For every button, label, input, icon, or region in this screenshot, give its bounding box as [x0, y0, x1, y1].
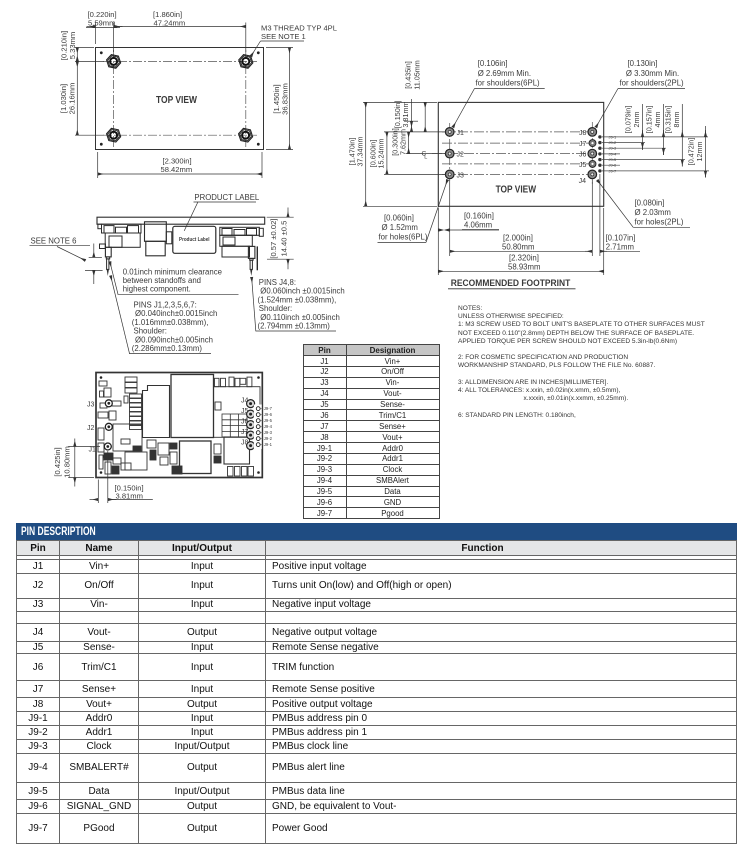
svg-text:50.80mm: 50.80mm — [502, 242, 535, 251]
svg-text:4mm: 4mm — [653, 112, 662, 128]
svg-text:SEE NOTE 6: SEE NOTE 6 — [31, 237, 77, 246]
svg-text:J7: J7 — [241, 429, 249, 436]
svg-text:[0.130in]: [0.130in] — [628, 59, 658, 68]
svg-text:J2: J2 — [457, 152, 465, 159]
svg-text:Product Label: Product Label — [179, 237, 210, 243]
svg-text:TOP VIEW: TOP VIEW — [496, 185, 537, 196]
svg-text:[0.160in]: [0.160in] — [464, 211, 494, 220]
svg-text:TOP VIEW: TOP VIEW — [156, 95, 197, 106]
svg-text:J4: J4 — [241, 398, 249, 405]
svg-text:3.81mm: 3.81mm — [116, 491, 143, 500]
svg-text:3.81mm: 3.81mm — [401, 102, 410, 128]
svg-text:for shoulders(6PL): for shoulders(6PL) — [476, 79, 541, 88]
svg-text:(2.286mm±0.13mm): (2.286mm±0.13mm) — [132, 344, 203, 353]
svg-text:14.40 ±0.5: 14.40 ±0.5 — [280, 221, 289, 257]
svg-text:[0.425in]: [0.425in] — [53, 447, 62, 476]
svg-text:47.24mm: 47.24mm — [154, 19, 186, 28]
svg-text:J5: J5 — [241, 408, 249, 415]
svg-text:[0.106in]: [0.106in] — [478, 59, 508, 68]
svg-text:J9-5: J9-5 — [264, 418, 273, 423]
svg-text:Ø0.040inch±0.0015inch: Ø0.040inch±0.0015inch — [135, 309, 217, 318]
svg-text:2.71mm: 2.71mm — [606, 242, 634, 251]
svg-text:[0.435in]: [0.435in] — [404, 61, 413, 89]
svg-text:(2.794mm ±0.13mm): (2.794mm ±0.13mm) — [258, 322, 331, 331]
svg-text:J1: J1 — [89, 447, 97, 454]
svg-text:J2: J2 — [87, 425, 95, 432]
svg-text:J3: J3 — [457, 173, 465, 180]
svg-text:Ø0.060inch ±0.0015inch: Ø0.060inch ±0.0015inch — [260, 287, 344, 296]
svg-text:J6: J6 — [241, 419, 249, 426]
svg-text:[0.107in]: [0.107in] — [606, 234, 636, 243]
svg-text:Shoulder:: Shoulder: — [259, 304, 292, 313]
svg-text:[2.000in]: [2.000in] — [503, 234, 533, 243]
svg-text:PINS J4,8:: PINS J4,8: — [259, 278, 296, 287]
svg-text:J9-4: J9-4 — [264, 424, 273, 429]
svg-text:58.42mm: 58.42mm — [161, 165, 193, 174]
svg-text:J6: J6 — [579, 152, 587, 159]
svg-text:4.06mm: 4.06mm — [464, 220, 492, 229]
svg-text:L: L — [424, 155, 427, 161]
svg-text:[0.060in]: [0.060in] — [384, 213, 414, 222]
svg-text:Shoulder:: Shoulder: — [134, 327, 167, 336]
svg-text:Ø0.090inch±0.005inch: Ø0.090inch±0.005inch — [135, 335, 213, 344]
svg-text:Ø0.110inch ±0.005inch: Ø0.110inch ±0.005inch — [260, 313, 340, 322]
svg-text:J8: J8 — [579, 130, 587, 137]
svg-text:PRODUCT LABEL: PRODUCT LABEL — [194, 193, 260, 202]
svg-text:12mm: 12mm — [695, 142, 704, 162]
svg-text:[2.320in]: [2.320in] — [509, 254, 539, 263]
svg-text:37.34mm: 37.34mm — [356, 137, 365, 167]
svg-text:J9-3: J9-3 — [264, 430, 273, 435]
svg-text:J9-2: J9-2 — [264, 436, 273, 441]
svg-text:J1: J1 — [457, 130, 465, 137]
svg-text:36.83mm: 36.83mm — [281, 83, 290, 115]
svg-text:PINS J1,2,3,5,6,7:: PINS J1,2,3,5,6,7: — [134, 301, 197, 310]
svg-text:J5: J5 — [579, 162, 587, 169]
svg-text:J7: J7 — [579, 141, 587, 148]
svg-text:2mm: 2mm — [632, 112, 641, 128]
svg-text:26.16mm: 26.16mm — [68, 83, 77, 115]
svg-text:Ø 2.03mm: Ø 2.03mm — [635, 208, 671, 217]
svg-text:[0.080in]: [0.080in] — [635, 198, 665, 207]
svg-text:5.33mm: 5.33mm — [68, 32, 77, 59]
svg-text:15.24mm: 15.24mm — [377, 139, 386, 169]
svg-text:highest component.: highest component. — [123, 285, 191, 294]
svg-text:J9-1: J9-1 — [264, 442, 273, 447]
svg-text:RECOMMENDED FOOTPRINT: RECOMMENDED FOOTPRINT — [451, 278, 571, 289]
svg-text:J8: J8 — [241, 440, 249, 447]
svg-text:for shoulders(2PL): for shoulders(2PL) — [620, 79, 685, 88]
svg-text:for holes(6PL): for holes(6PL) — [379, 233, 428, 242]
svg-text:10.80mm: 10.80mm — [63, 446, 72, 478]
svg-text:Ø 3.30mm Min.: Ø 3.30mm Min. — [626, 69, 679, 78]
svg-text:J3: J3 — [87, 401, 95, 408]
svg-text:J9-7: J9-7 — [264, 406, 273, 411]
svg-text:J9-6: J9-6 — [264, 412, 273, 417]
svg-text:7.62mm: 7.62mm — [399, 129, 408, 155]
svg-text:J4: J4 — [579, 178, 587, 185]
svg-text:[0.57 ±0.02]: [0.57 ±0.02] — [269, 219, 278, 259]
svg-text:(1.016mm±0.038mm),: (1.016mm±0.038mm), — [132, 318, 209, 327]
svg-text:5.59mm: 5.59mm — [88, 19, 115, 28]
svg-text:58.93mm: 58.93mm — [508, 262, 541, 271]
svg-text:for holes(2PL): for holes(2PL) — [635, 218, 684, 227]
svg-text:11.05mm: 11.05mm — [413, 60, 422, 89]
svg-text:8mm: 8mm — [672, 112, 681, 128]
svg-text:Ø 2.69mm Min.: Ø 2.69mm Min. — [478, 69, 531, 78]
svg-text:SEE NOTE 1: SEE NOTE 1 — [261, 32, 306, 41]
svg-text:(1.524mm ±0.038mm),: (1.524mm ±0.038mm), — [258, 295, 337, 304]
svg-text:Ø 1.52mm: Ø 1.52mm — [382, 223, 418, 232]
